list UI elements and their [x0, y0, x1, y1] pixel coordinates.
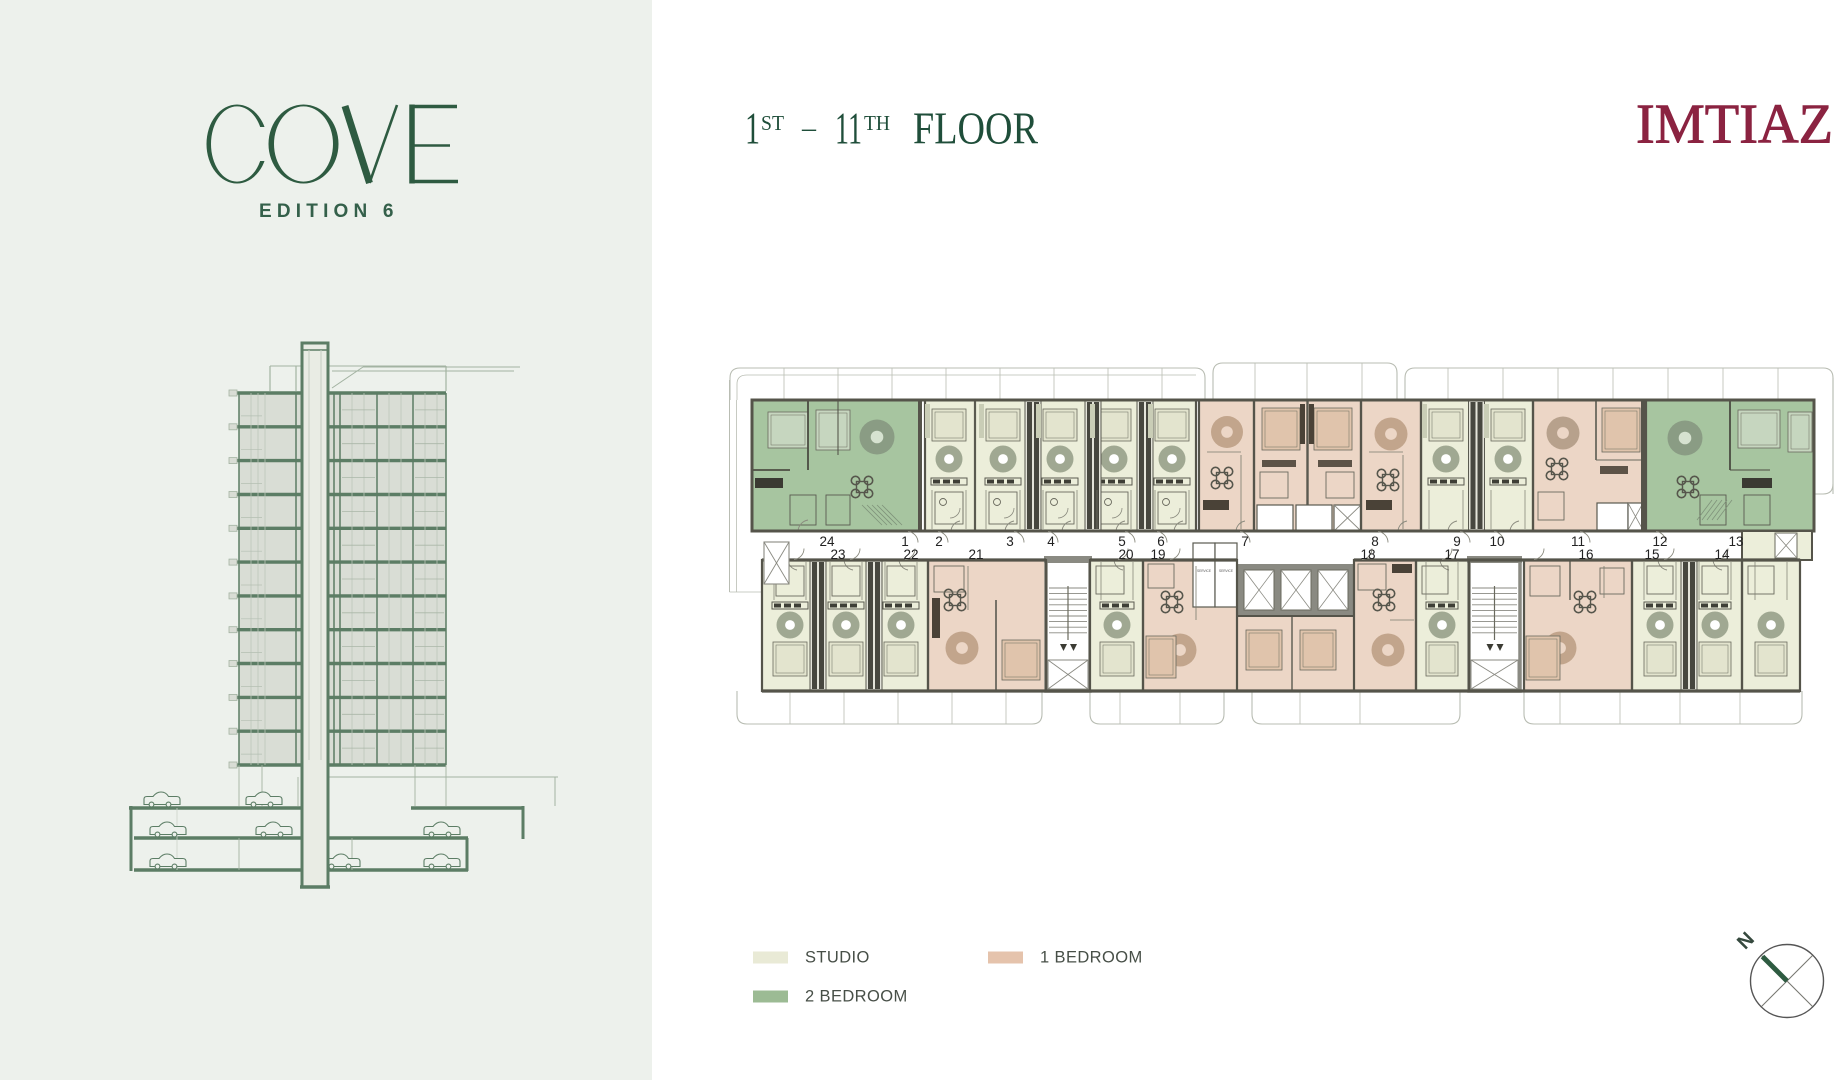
svg-text:10: 10: [1489, 534, 1504, 549]
svg-text:SERVICE: SERVICE: [1219, 569, 1233, 573]
svg-text:4: 4: [1047, 534, 1055, 549]
svg-text:16: 16: [1578, 547, 1593, 562]
svg-text:SERVICE: SERVICE: [1197, 569, 1211, 573]
svg-text:18: 18: [1360, 547, 1375, 562]
svg-text:ST: ST: [761, 111, 784, 135]
svg-text:2 BEDROOM: 2 BEDROOM: [805, 988, 908, 1006]
svg-text:EDITION 6: EDITION 6: [259, 201, 399, 222]
svg-text:14: 14: [1714, 547, 1730, 562]
svg-text:FLOOR: FLOOR: [913, 104, 1038, 154]
svg-text:2: 2: [935, 534, 943, 549]
svg-text:N: N: [1733, 928, 1759, 954]
svg-text:22: 22: [903, 547, 918, 562]
svg-text:17: 17: [1444, 547, 1459, 562]
svg-text:7: 7: [1241, 534, 1249, 549]
svg-text:STUDIO: STUDIO: [805, 949, 870, 967]
svg-text:11: 11: [835, 103, 862, 154]
svg-text:IMTIAZ: IMTIAZ: [1636, 94, 1833, 156]
svg-text:13: 13: [1728, 534, 1743, 549]
svg-text:20: 20: [1118, 547, 1133, 562]
svg-text:23: 23: [830, 547, 845, 562]
svg-text:19: 19: [1150, 547, 1165, 562]
svg-text:3: 3: [1006, 534, 1014, 549]
svg-text:1: 1: [745, 103, 760, 154]
svg-text:TH: TH: [864, 111, 890, 135]
svg-text:1 BEDROOM: 1 BEDROOM: [1040, 949, 1143, 967]
svg-text:15: 15: [1644, 547, 1659, 562]
svg-text:21: 21: [968, 547, 983, 562]
svg-text:–: –: [801, 113, 817, 144]
